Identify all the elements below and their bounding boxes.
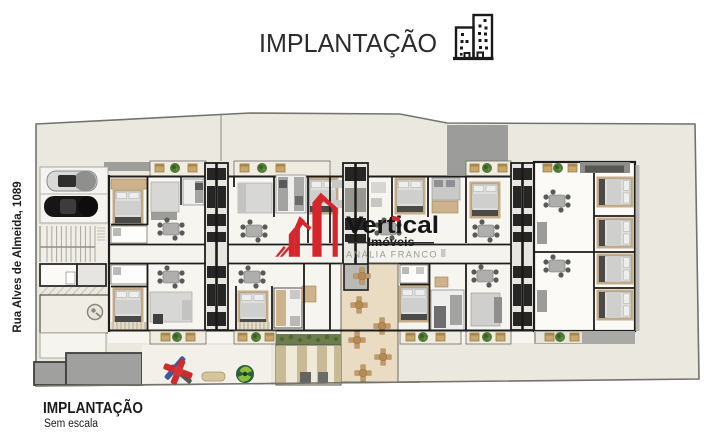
svg-text:IMPLANTAÇÃO: IMPLANTAÇÃO [43, 399, 143, 417]
svg-text:Vertical: Vertical [346, 212, 439, 239]
svg-text:ANÁLIA FRANCO: ANÁLIA FRANCO [346, 250, 438, 260]
svg-text:Sem escala: Sem escala [44, 418, 99, 430]
svg-text:Rua Alves de Almeida, 1089: Rua Alves de Almeida, 1089 [12, 181, 24, 332]
svg-text:IMPLANTAÇÃO: IMPLANTAÇÃO [259, 28, 437, 58]
